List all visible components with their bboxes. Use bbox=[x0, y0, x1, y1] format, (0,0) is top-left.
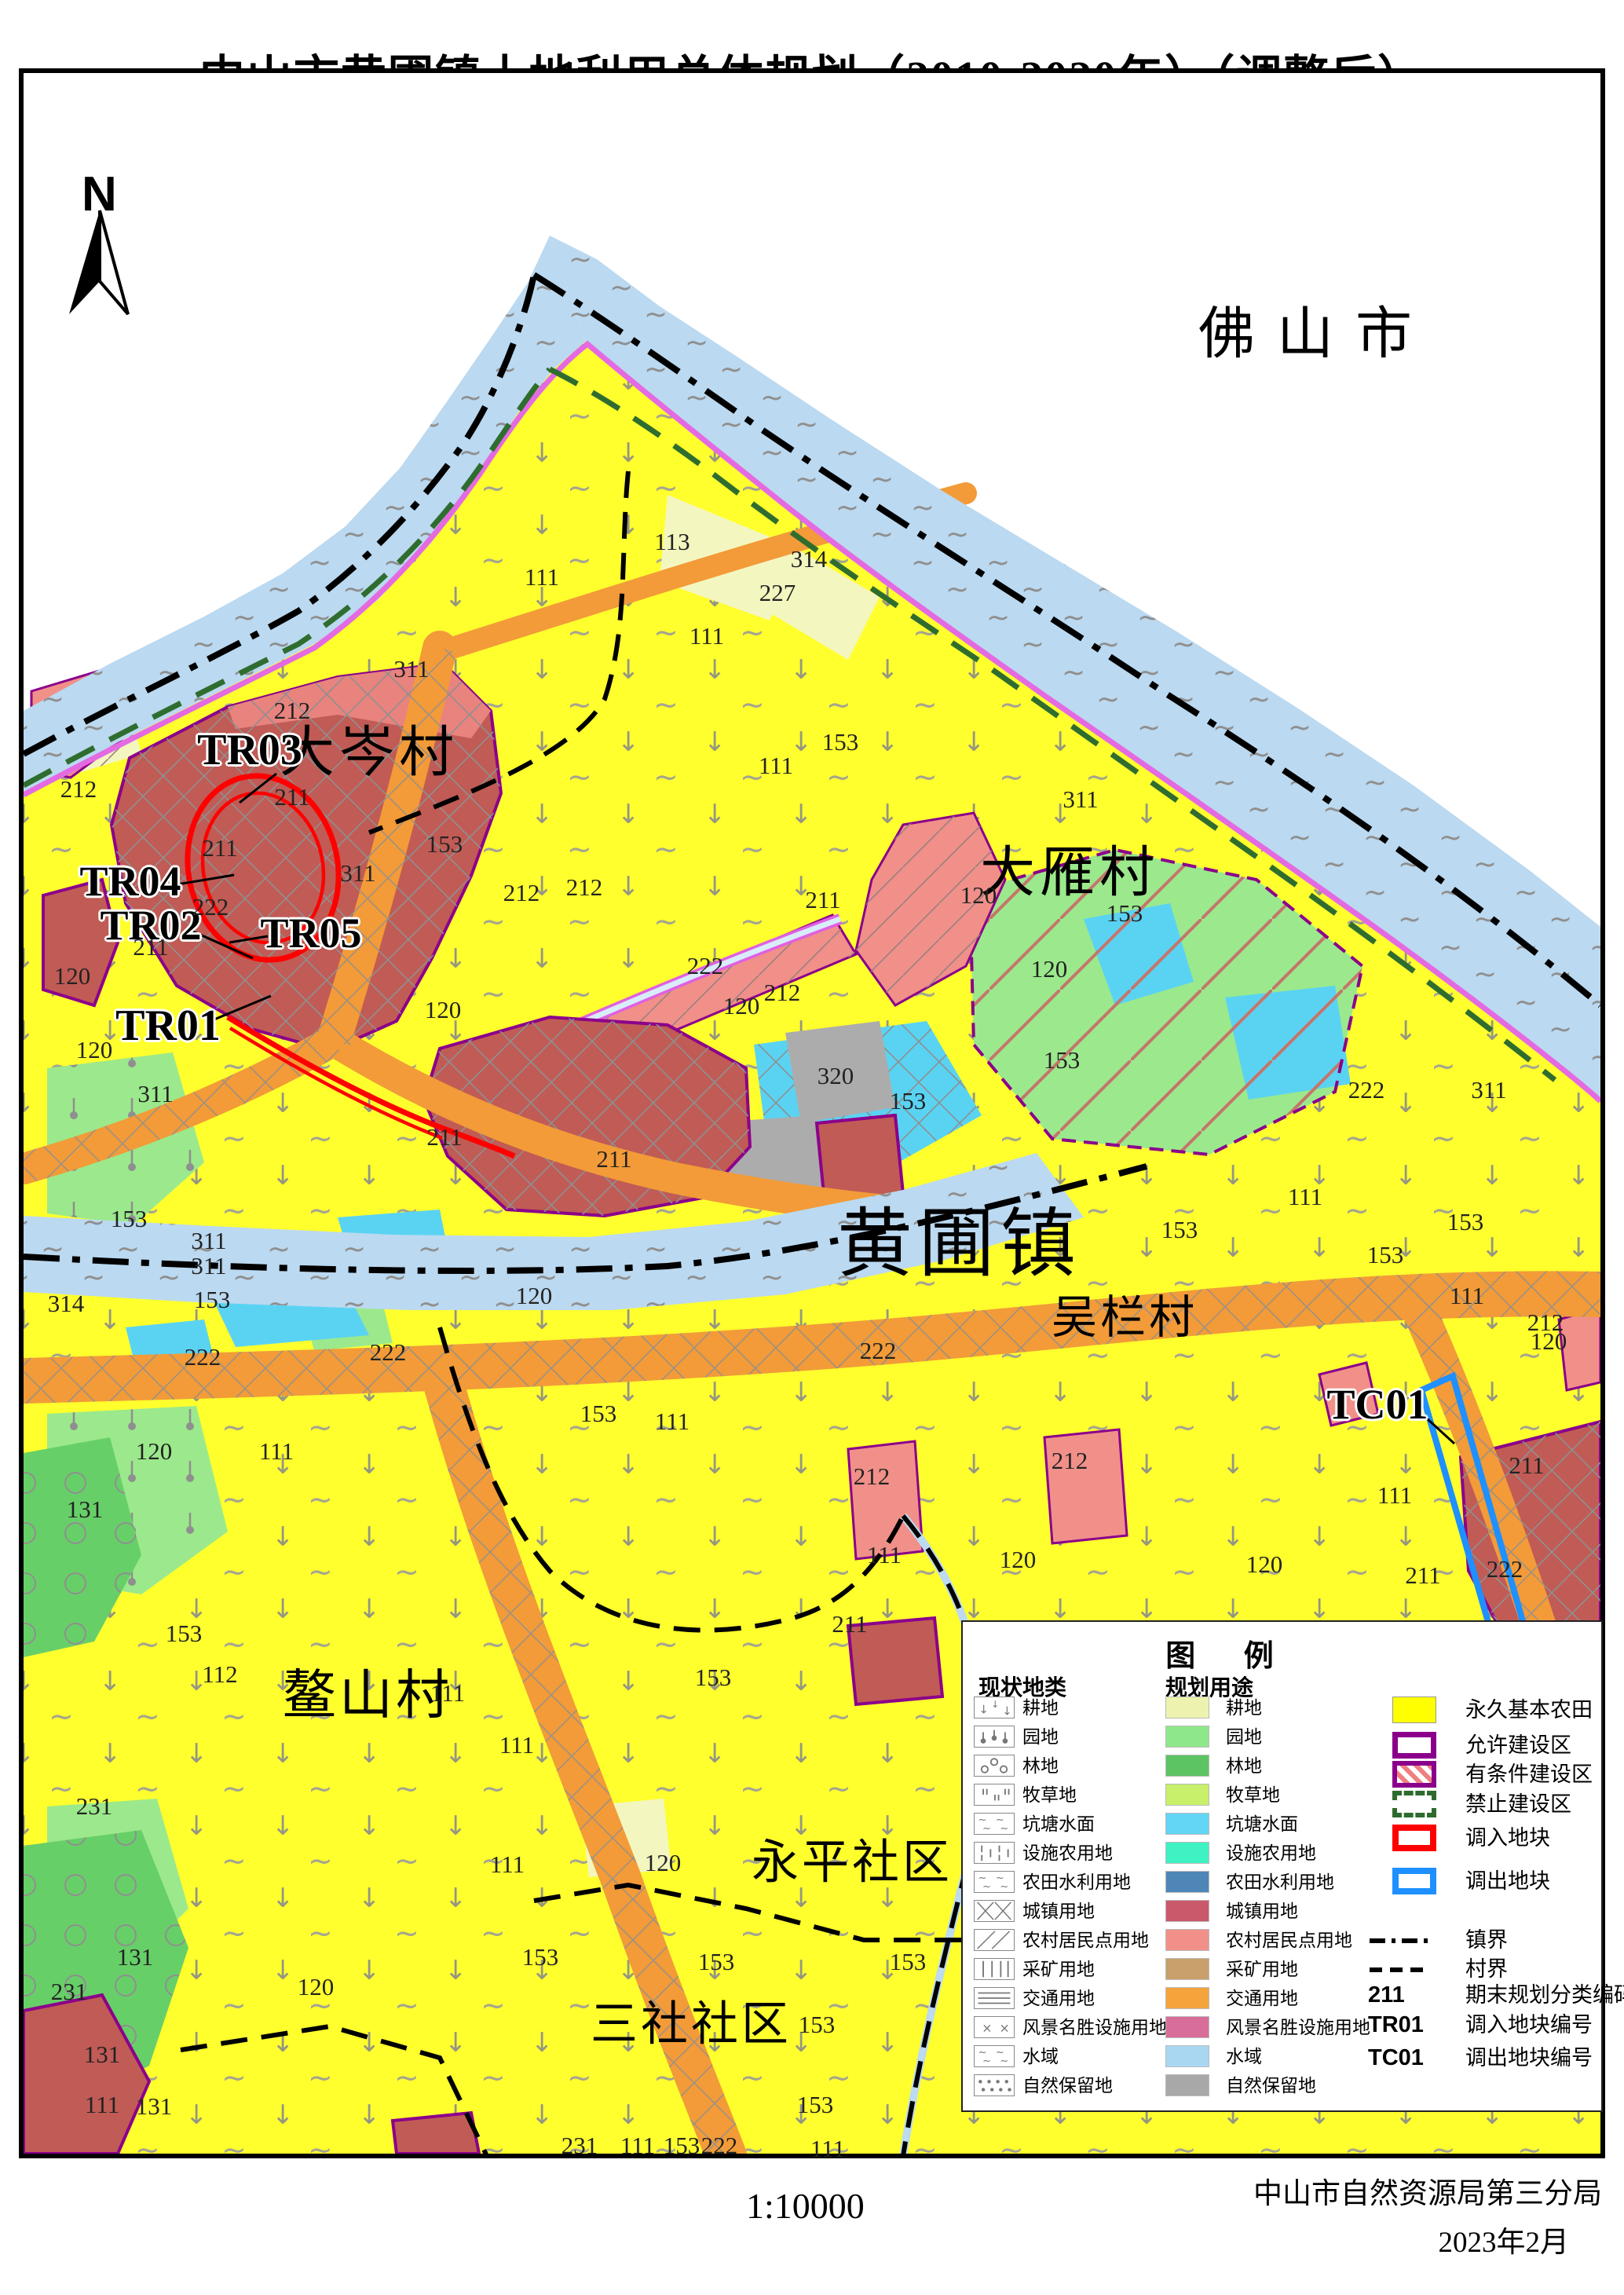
zone-label: 调入地块 bbox=[1465, 1826, 1550, 1850]
planned-use-label: 城镇用地 bbox=[1226, 1900, 1298, 1923]
zone-label: 禁止建设区 bbox=[1465, 1792, 1571, 1816]
legend-code-label: 调入地块编号 bbox=[1465, 2013, 1593, 2037]
legend-code-label: 调出地块编号 bbox=[1465, 2046, 1593, 2070]
boundary-line-sample bbox=[1368, 1965, 1431, 1975]
zone-swatch-outline-purple bbox=[1392, 1732, 1436, 1759]
agency-name: 中山市自然资源局第三分局 bbox=[1253, 2169, 1602, 2212]
legend-zone-row: 调出地块 bbox=[963, 1868, 1601, 1891]
zone-label: 调出地块 bbox=[1465, 1869, 1550, 1893]
zone-swatch-outline-blue bbox=[1392, 1868, 1436, 1894]
planned-use-label: 自然保留地 bbox=[1226, 2074, 1316, 2098]
planned-use-swatch bbox=[1165, 1900, 1209, 1922]
boundary-line-sample bbox=[1368, 1936, 1431, 1945]
zone-label: 允许建设区 bbox=[1465, 1733, 1571, 1757]
legend-code: 211 bbox=[1368, 1983, 1405, 2007]
legend-line-row: 村界 bbox=[963, 1957, 1601, 1981]
boundary-line-label: 镇界 bbox=[1465, 1928, 1508, 1952]
legend-zone-row: 有条件建设区 bbox=[963, 1761, 1601, 1784]
legend-title: 图 例 bbox=[963, 1631, 1497, 1675]
legend-zone-row: 禁止建设区 bbox=[963, 1791, 1601, 1814]
zone-label: 有条件建设区 bbox=[1465, 1762, 1593, 1786]
zone-label: 永久基本农田 bbox=[1465, 1698, 1593, 1722]
zone-swatch-dash-green bbox=[1392, 1791, 1436, 1817]
legend-code: TC01 bbox=[1368, 2046, 1424, 2070]
north-label: N bbox=[82, 167, 117, 222]
map-scale: 1:10000 bbox=[746, 2185, 865, 2227]
legend-code-row: TR01调入地块编号 bbox=[963, 2013, 1601, 2037]
legend-zone-row: 永久基本农田 bbox=[963, 1697, 1601, 1720]
legend-zone-row: 调入地块 bbox=[963, 1825, 1601, 1848]
legend-line-row: 镇界 bbox=[963, 1928, 1601, 1952]
zone-swatch-outline-red bbox=[1392, 1825, 1436, 1851]
current-type-label: 自然保留地 bbox=[1022, 2074, 1113, 2098]
current-type-swatch bbox=[974, 1900, 1015, 1922]
current-type-label: 城镇用地 bbox=[1022, 1900, 1095, 1923]
zone-swatch-fill-yellow bbox=[1392, 1697, 1436, 1723]
boundary-line-label: 村界 bbox=[1465, 1957, 1508, 1981]
planning-map-page: 中山市黄圃镇土地利用总体规划（2010-2020年）（调整后） ↓ ~ ~ ~ bbox=[0, 0, 1624, 2295]
zone-swatch-hatch-cond bbox=[1392, 1761, 1436, 1788]
legend-zone-row: 允许建设区 bbox=[963, 1732, 1601, 1755]
legend-row: 城镇用地城镇用地 bbox=[963, 1900, 1601, 1923]
map-date: 2023年2月 bbox=[1439, 2218, 1570, 2260]
legend-code: TR01 bbox=[1368, 2013, 1424, 2037]
current-type-swatch bbox=[974, 2074, 1015, 2096]
legend-code-row: 211期末规划分类编码 bbox=[963, 1983, 1601, 2007]
legend-panel: 图 例 现状地类 规划用途 ↓↓↓耕地耕地园地园地林地林地牧草地牧草地~~~~坑… bbox=[961, 1620, 1603, 2112]
planned-use-swatch bbox=[1165, 2074, 1209, 2096]
legend-code-row: TC01调出地块编号 bbox=[963, 2046, 1601, 2070]
legend-code-label: 期末规划分类编码 bbox=[1465, 1983, 1624, 2007]
legend-row: 自然保留地自然保留地 bbox=[963, 2074, 1601, 2098]
